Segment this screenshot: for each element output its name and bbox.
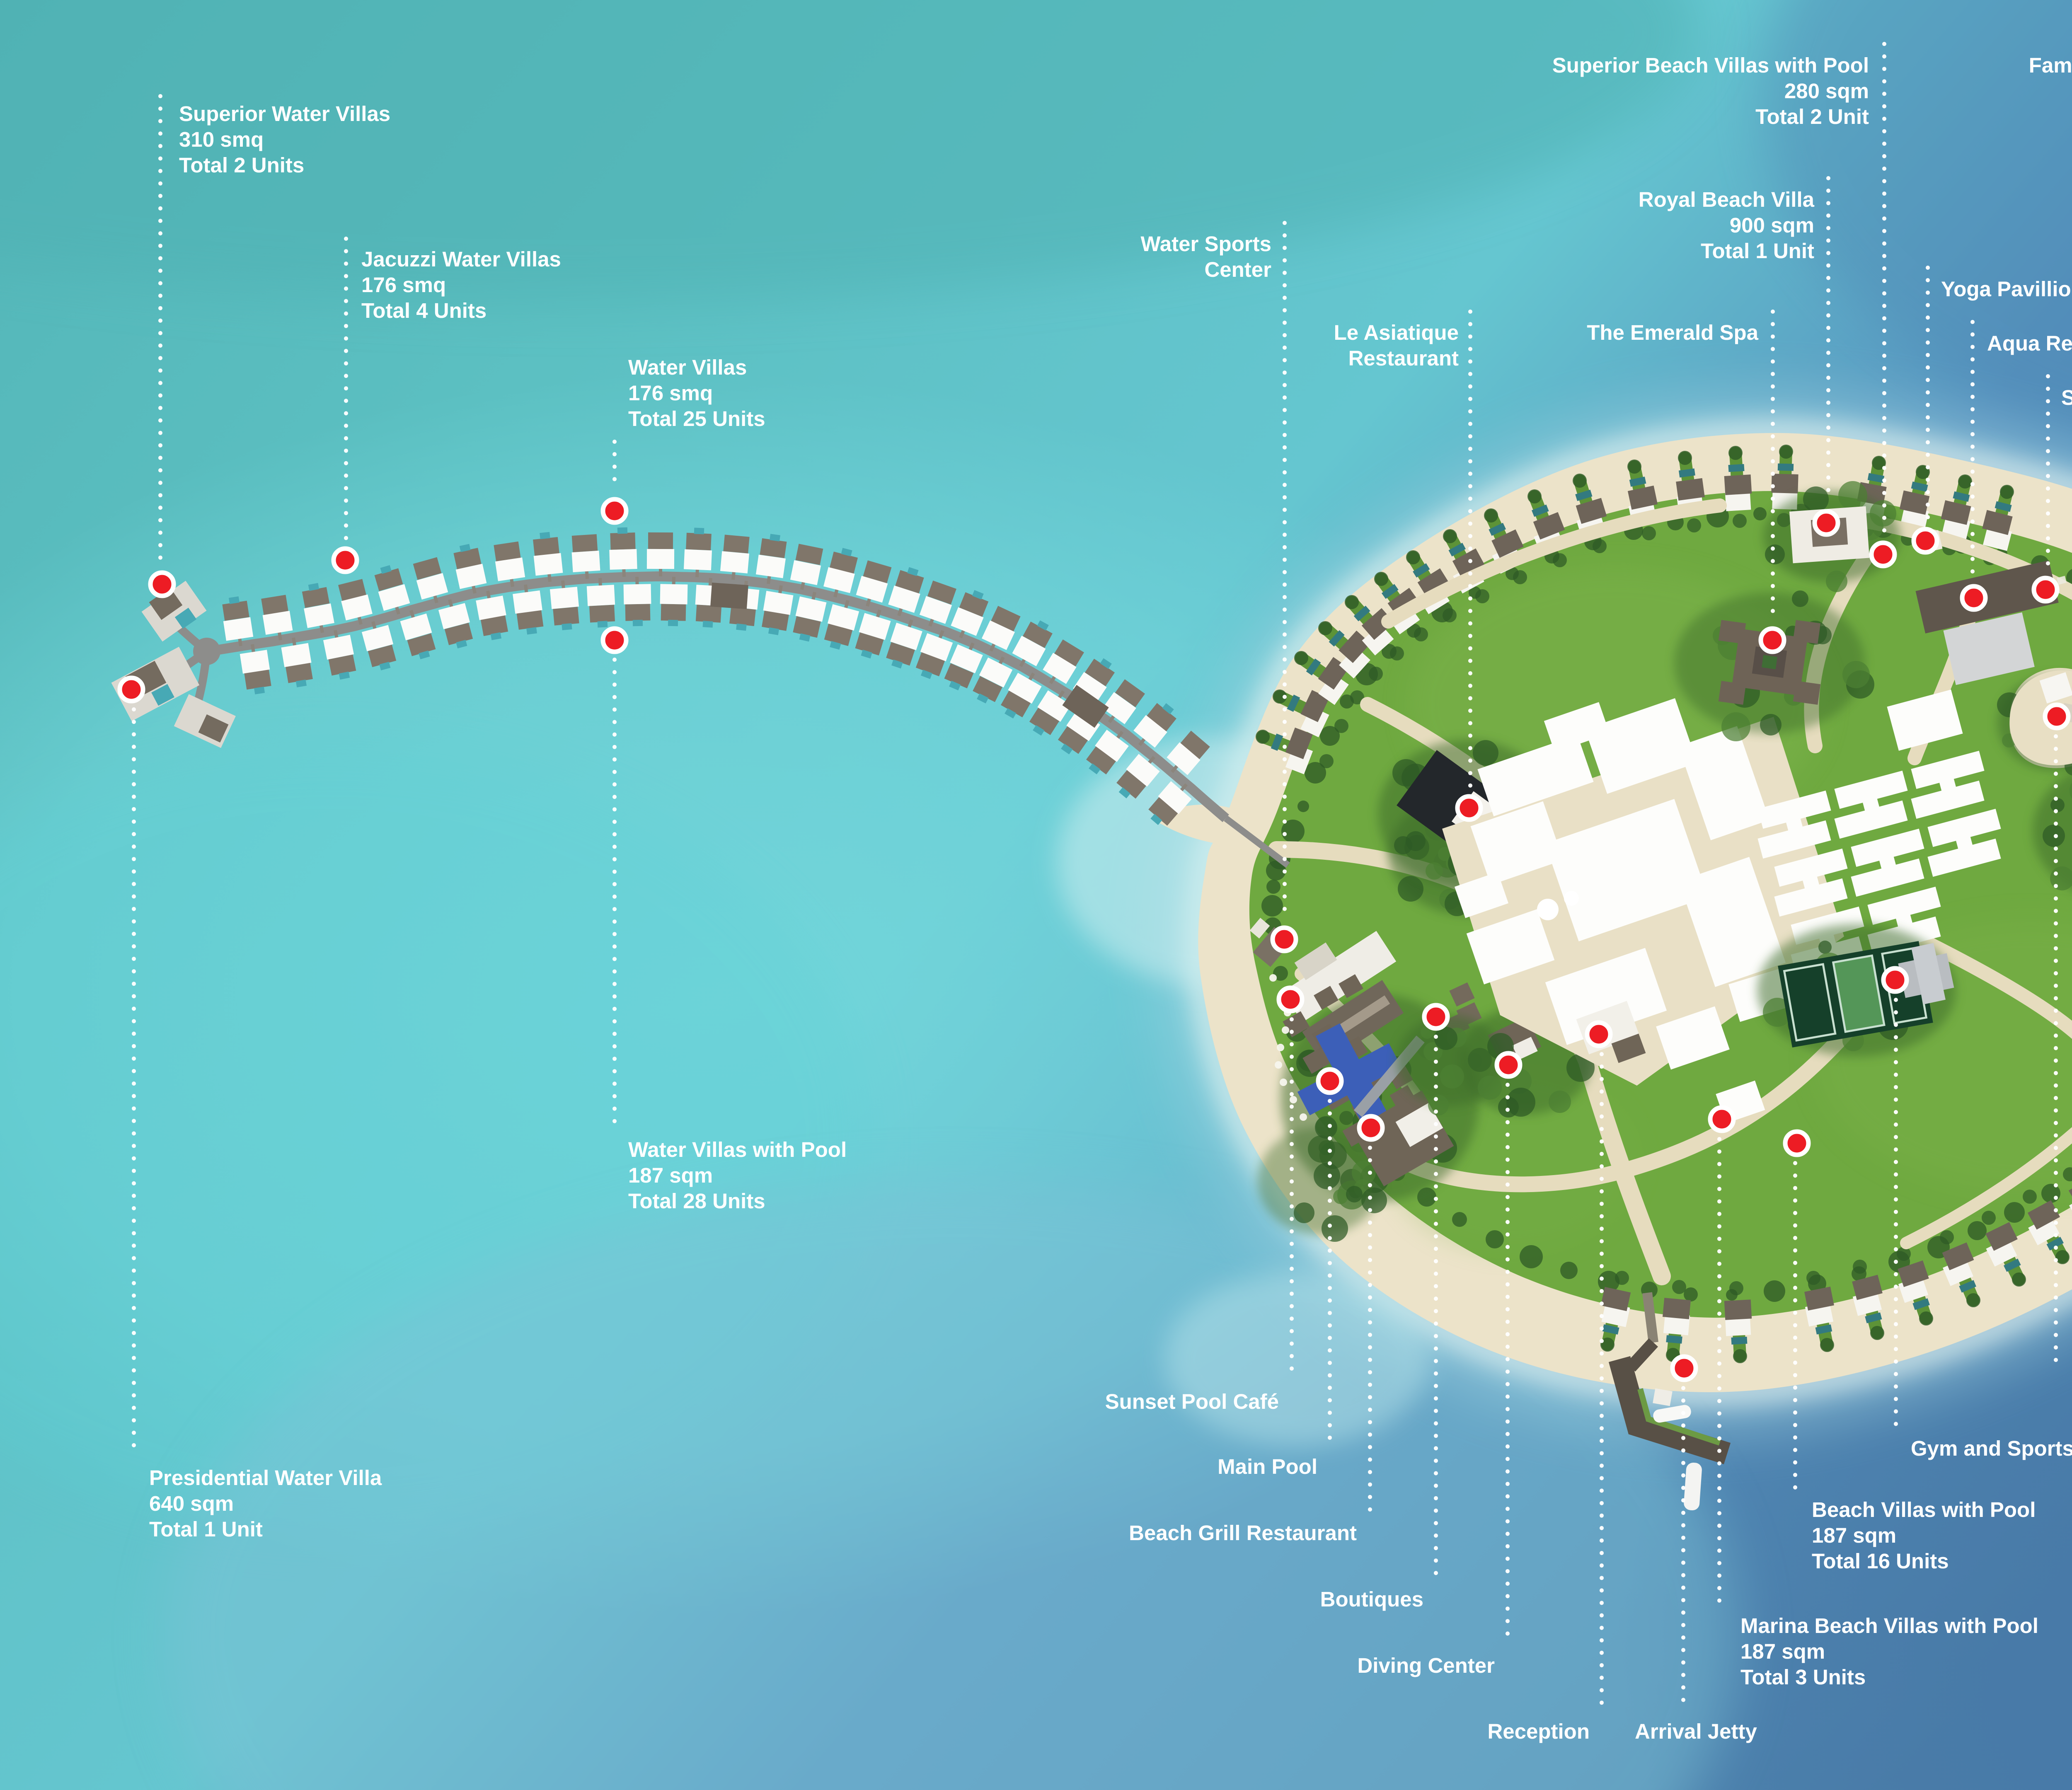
svg-text:900 sqm: 900 sqm [1730,213,1814,237]
svg-text:187 sqm: 187 sqm [628,1163,713,1187]
svg-text:Sunset Pool Café: Sunset Pool Café [1105,1390,1279,1413]
svg-text:280 sqm: 280 sqm [1784,79,1869,103]
svg-text:Total 2 Units: Total 2 Units [179,153,304,177]
svg-text:Aqua Restaurant: Aqua Restaurant [1987,331,2072,355]
svg-text:Gym and Sports Center: Gym and Sports Center [1911,1437,2072,1460]
svg-text:Superior Beach Villas with Poo: Superior Beach Villas with Pool [1552,53,1869,77]
svg-text:The Emerald Spa: The Emerald Spa [1587,321,1758,344]
svg-text:Water Sports: Water Sports [1141,232,1272,256]
svg-text:Water Villas: Water Villas [628,356,747,379]
svg-text:Royal Beach Villa: Royal Beach Villa [1639,188,1815,211]
svg-text:Arrival Jetty: Arrival Jetty [1635,1720,1757,1743]
svg-text:Diving Center: Diving Center [1357,1654,1495,1677]
svg-text:310 smq: 310 smq [179,128,264,151]
svg-text:187 sqm: 187 sqm [1740,1640,1825,1663]
svg-text:187 sqm: 187 sqm [1812,1524,1896,1547]
svg-text:Presidential Water Villa: Presidential Water Villa [149,1466,382,1490]
svg-text:176 smq: 176 smq [628,381,713,405]
svg-text:Restaurant: Restaurant [1348,346,1459,370]
svg-text:Le Asiatique: Le Asiatique [1334,321,1459,344]
svg-text:Total 28 Units: Total 28 Units [628,1189,765,1213]
svg-text:Total 25 Units: Total 25 Units [628,407,765,431]
svg-text:Family Beach Villas: Family Beach Villas [2029,53,2072,77]
svg-text:Total 1 Unit: Total 1 Unit [1701,239,1814,263]
svg-text:Beach Grill Restaurant: Beach Grill Restaurant [1129,1521,1357,1545]
svg-text:Total 4 Units: Total 4 Units [361,299,487,322]
svg-text:Marina Beach Villas with Pool: Marina Beach Villas with Pool [1740,1614,2038,1638]
svg-text:Yoga Pavillion: Yoga Pavillion [1941,277,2072,301]
svg-text:Center: Center [1204,258,1271,281]
svg-text:640 sqm: 640 sqm [149,1492,234,1515]
svg-text:Total 1 Unit: Total 1 Unit [149,1517,263,1541]
svg-text:Water Villas with Pool: Water Villas with Pool [628,1138,847,1161]
svg-text:Superior Water Villas: Superior Water Villas [179,102,390,126]
svg-text:Main Pool: Main Pool [1218,1455,1317,1478]
svg-text:Total 2 Unit: Total 2 Unit [1755,105,1869,128]
svg-text:Beach Villas with Pool: Beach Villas with Pool [1812,1498,2036,1521]
svg-text:Total 3 Units: Total 3 Units [1740,1665,1866,1689]
svg-text:Jacuzzi Water Villas: Jacuzzi Water Villas [361,247,561,271]
svg-text:Total 16 Units: Total 16 Units [1812,1549,1949,1573]
svg-text:176 smq: 176 smq [361,273,446,297]
svg-text:Sunrise Café: Sunrise Café [2061,386,2072,409]
svg-text:Boutiques: Boutiques [1320,1587,1423,1611]
svg-text:Reception: Reception [1487,1720,1590,1743]
